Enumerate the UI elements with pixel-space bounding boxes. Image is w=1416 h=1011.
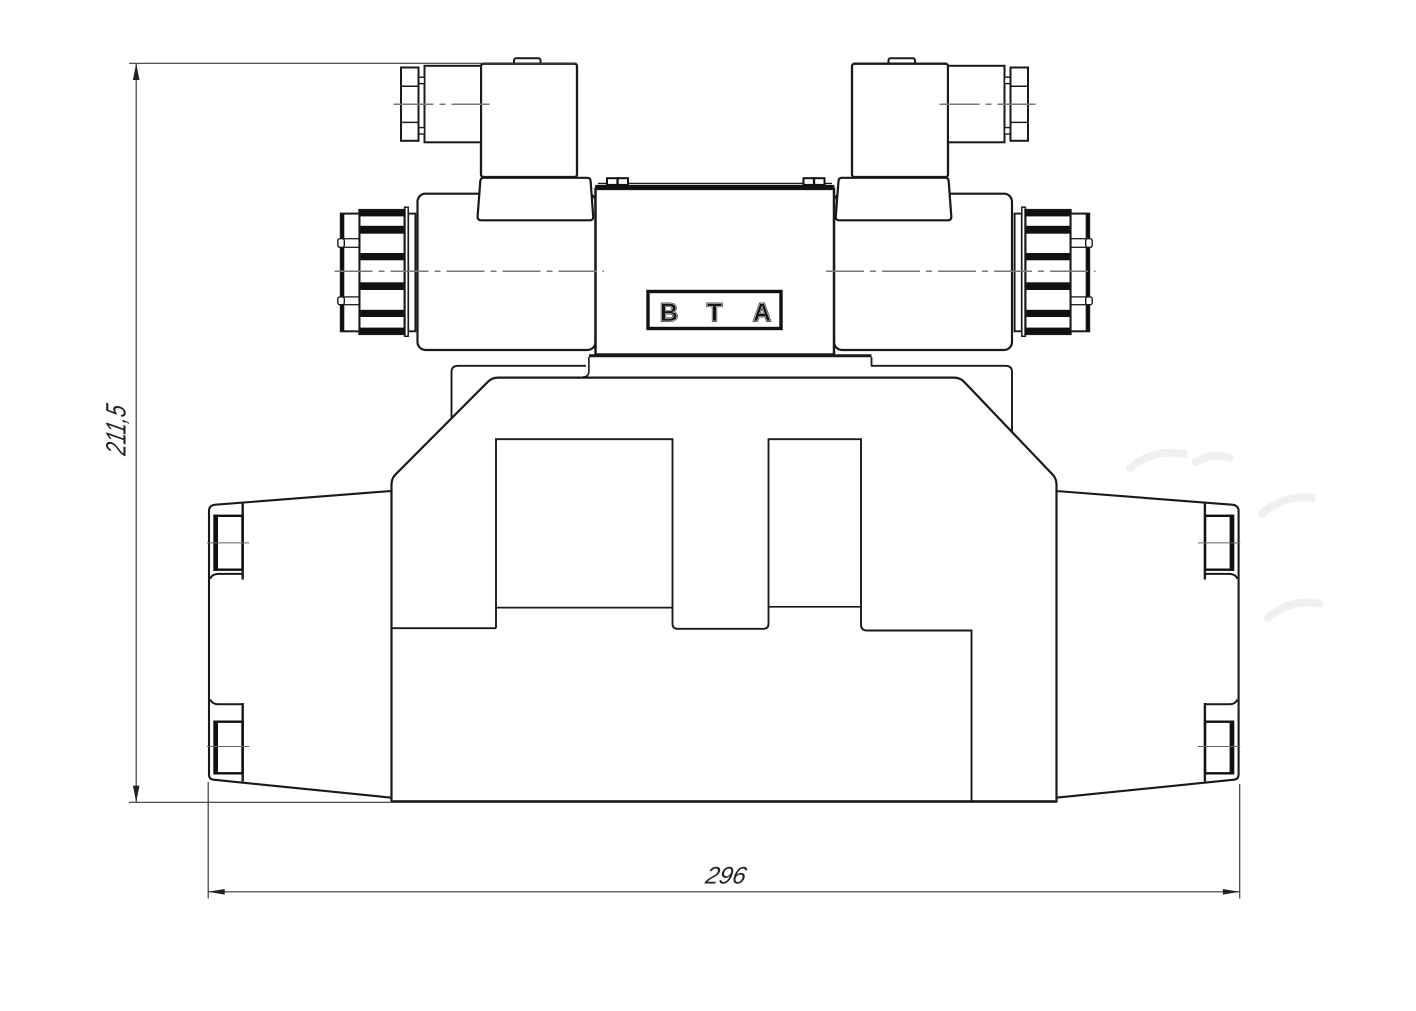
svg-text:211,5: 211,5: [101, 401, 133, 458]
svg-text:A: A: [753, 299, 771, 327]
svg-text:T: T: [707, 299, 722, 327]
svg-text:B: B: [660, 299, 678, 327]
svg-text:296: 296: [702, 863, 749, 890]
